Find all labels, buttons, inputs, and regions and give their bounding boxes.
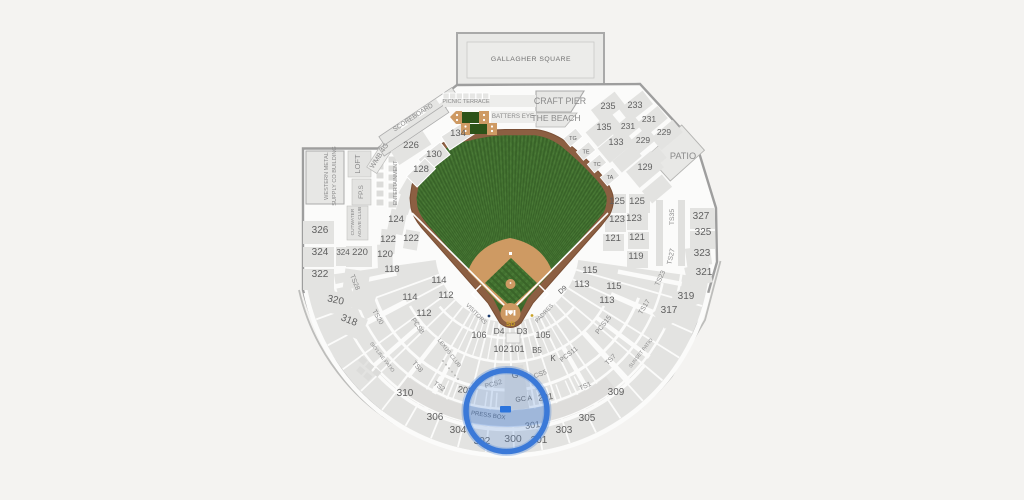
svg-text:122: 122 xyxy=(380,234,396,245)
svg-text:114: 114 xyxy=(431,275,446,286)
svg-text:322: 322 xyxy=(312,269,329,280)
svg-text:319: 319 xyxy=(678,291,695,302)
svg-text:323: 323 xyxy=(694,248,711,259)
svg-text:ENTERTAINMENT: ENTERTAINMENT xyxy=(393,160,399,205)
svg-text:220: 220 xyxy=(352,247,368,258)
svg-text:135: 135 xyxy=(596,122,611,132)
svg-text:129: 129 xyxy=(637,162,652,172)
svg-text:106: 106 xyxy=(471,330,486,340)
svg-text:128: 128 xyxy=(413,164,429,175)
svg-text:133: 133 xyxy=(608,137,623,147)
svg-text:309: 309 xyxy=(608,387,625,398)
svg-text:118: 118 xyxy=(384,264,399,275)
svg-text:231: 231 xyxy=(621,121,635,131)
svg-text:112: 112 xyxy=(438,290,453,301)
svg-text:317: 317 xyxy=(661,305,678,316)
svg-text:120: 120 xyxy=(377,249,393,260)
svg-text:FP.S: FP.S xyxy=(358,185,365,199)
svg-text:123: 123 xyxy=(609,214,625,225)
svg-text:CRAFT PIER: CRAFT PIER xyxy=(534,96,586,106)
svg-text:231: 231 xyxy=(642,114,656,124)
svg-text:115: 115 xyxy=(582,265,597,276)
svg-text:B5: B5 xyxy=(532,346,542,355)
svg-text:K: K xyxy=(550,354,556,363)
svg-text:113: 113 xyxy=(599,295,614,306)
svg-text:102: 102 xyxy=(493,344,508,354)
svg-text:WESTERN METAL: WESTERN METAL xyxy=(324,152,330,200)
svg-text:CUTWATER: CUTWATER xyxy=(350,208,356,235)
svg-text:327: 327 xyxy=(693,211,710,222)
svg-text:130: 130 xyxy=(426,149,442,160)
svg-text:BATTERS EYE: BATTERS EYE xyxy=(492,113,534,120)
svg-text:324: 324 xyxy=(312,247,329,258)
svg-text:124: 124 xyxy=(388,214,404,225)
svg-text:115: 115 xyxy=(606,281,621,292)
svg-text:121: 121 xyxy=(605,233,621,244)
svg-text:233: 233 xyxy=(627,100,642,110)
svg-text:112: 112 xyxy=(416,308,431,319)
svg-text:THE BEACH: THE BEACH xyxy=(531,113,580,123)
svg-text:LOFT: LOFT xyxy=(353,154,362,174)
svg-text:119: 119 xyxy=(628,251,643,262)
svg-text:TS35: TS35 xyxy=(669,209,676,225)
svg-text:TA: TA xyxy=(607,175,614,181)
svg-text:D4: D4 xyxy=(494,326,505,336)
svg-text:229: 229 xyxy=(657,127,671,137)
svg-text:324: 324 xyxy=(336,248,350,257)
svg-text:304: 304 xyxy=(450,425,467,436)
svg-text:122: 122 xyxy=(403,233,419,244)
svg-text:123: 123 xyxy=(626,213,642,224)
svg-text:306: 306 xyxy=(427,412,444,423)
svg-text:TG: TG xyxy=(569,136,577,142)
svg-text:TC: TC xyxy=(593,162,600,168)
svg-text:325: 325 xyxy=(695,227,712,238)
svg-text:105: 105 xyxy=(535,330,550,340)
svg-text:SD: SD xyxy=(506,321,515,328)
svg-text:101: 101 xyxy=(509,344,524,354)
svg-text:SUPPLY CO BUILDING: SUPPLY CO BUILDING xyxy=(332,146,338,205)
svg-text:134: 134 xyxy=(450,128,466,139)
svg-text:310: 310 xyxy=(397,388,414,399)
svg-text:303: 303 xyxy=(556,425,573,436)
svg-text:PATIO: PATIO xyxy=(670,151,696,161)
svg-text:PICNIC TERRACE: PICNIC TERRACE xyxy=(442,99,489,105)
svg-text:235: 235 xyxy=(600,101,615,111)
svg-text:AGAVE CLUB: AGAVE CLUB xyxy=(357,207,363,237)
svg-text:125: 125 xyxy=(609,196,625,207)
svg-text:D3: D3 xyxy=(517,326,528,336)
svg-text:113: 113 xyxy=(574,279,589,290)
svg-text:321: 321 xyxy=(696,267,713,278)
svg-text:229: 229 xyxy=(636,135,650,145)
svg-text:125: 125 xyxy=(629,196,645,207)
svg-text:305: 305 xyxy=(579,413,596,424)
svg-text:GALLAGHER SQUARE: GALLAGHER SQUARE xyxy=(491,56,571,63)
svg-text:121: 121 xyxy=(629,232,645,243)
svg-text:326: 326 xyxy=(312,225,329,236)
svg-text:114: 114 xyxy=(402,292,417,303)
svg-text:226: 226 xyxy=(403,140,419,151)
svg-text:TE: TE xyxy=(582,150,589,156)
